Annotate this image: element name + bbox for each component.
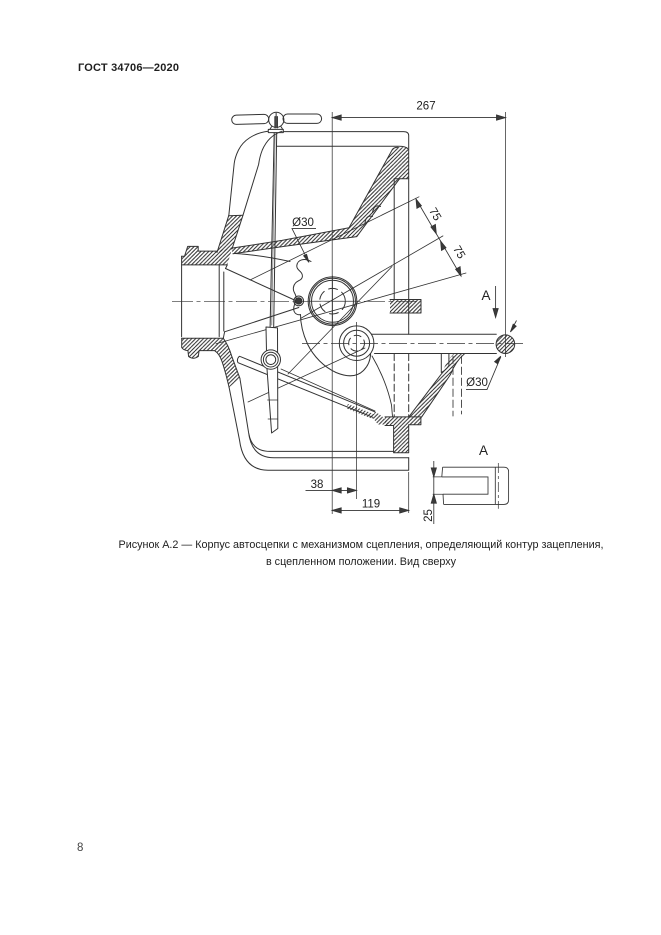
- svg-text:Ø30: Ø30: [292, 217, 314, 229]
- svg-text:А: А: [479, 443, 488, 458]
- svg-text:75: 75: [450, 244, 467, 261]
- svg-text:119: 119: [362, 499, 380, 511]
- svg-text:Ø30: Ø30: [466, 377, 488, 389]
- svg-text:267: 267: [416, 101, 435, 113]
- svg-text:38: 38: [311, 479, 324, 491]
- svg-text:А: А: [481, 288, 490, 303]
- svg-text:25: 25: [423, 509, 435, 522]
